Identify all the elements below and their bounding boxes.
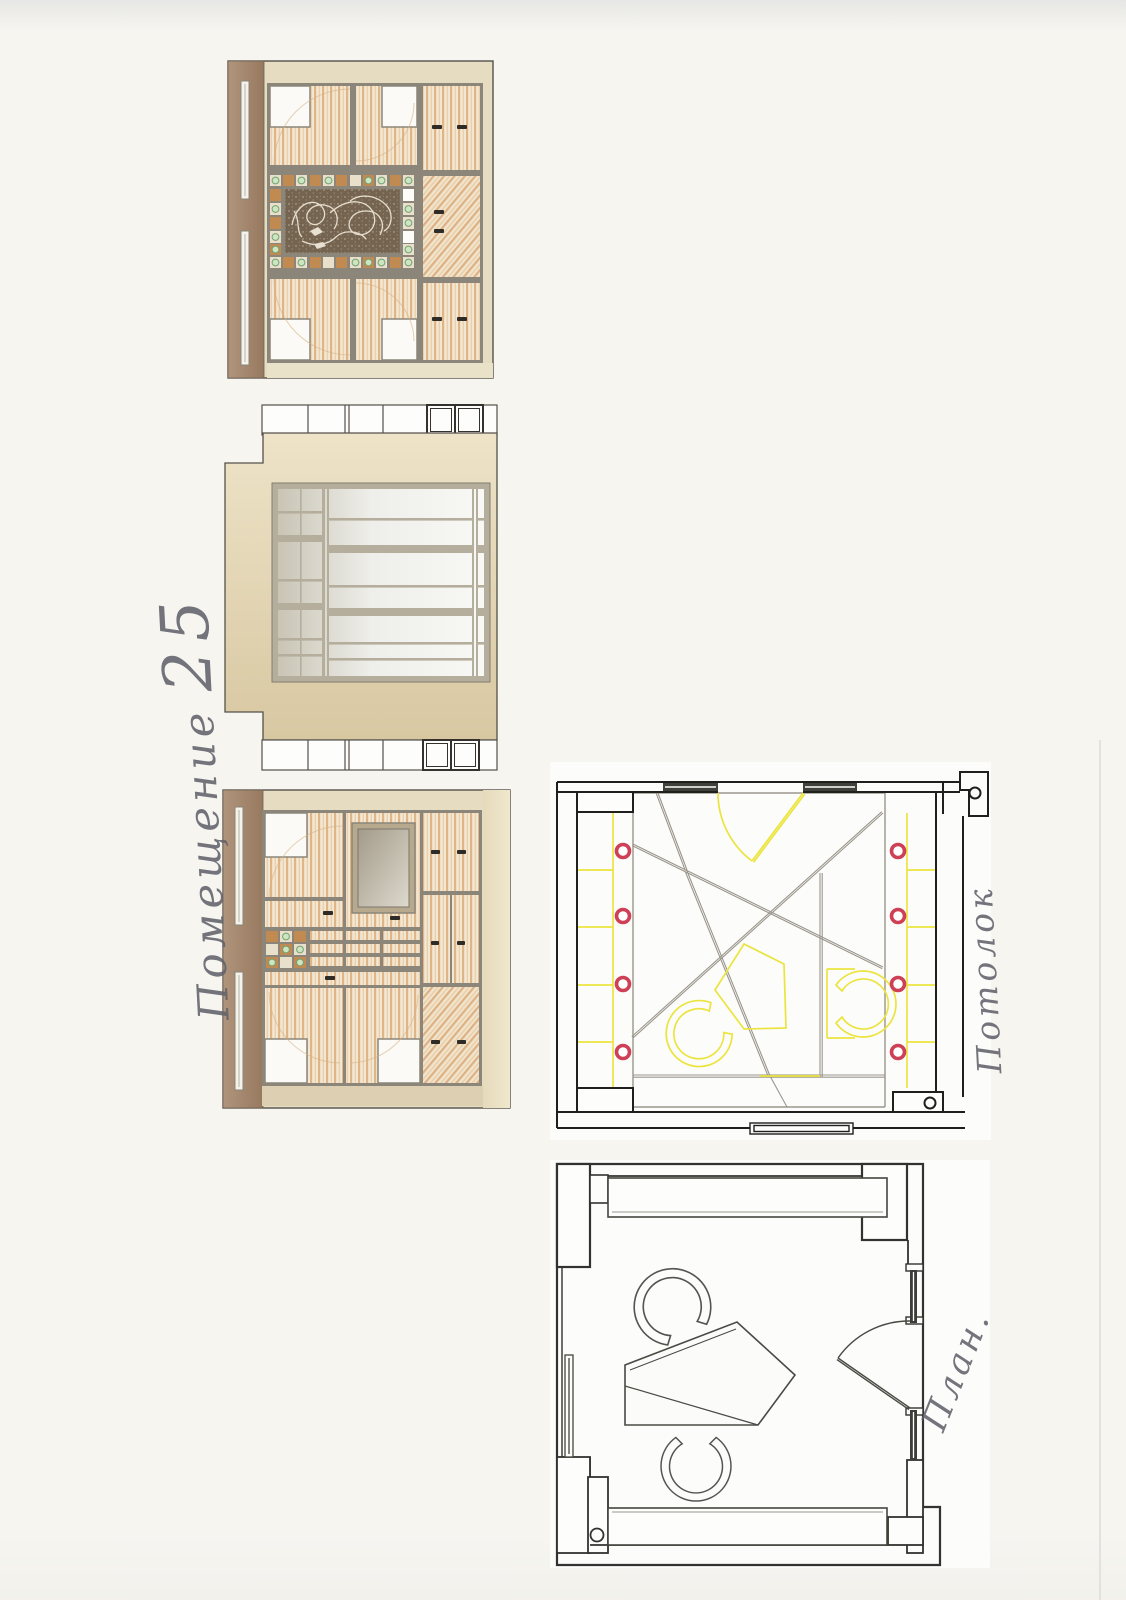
cabinet-handle xyxy=(323,911,333,915)
reference-circle xyxy=(925,1098,936,1109)
mirror xyxy=(352,823,415,913)
floor-plan xyxy=(550,1160,990,1568)
accent-dot-grid xyxy=(265,930,307,968)
cabinet-symbol xyxy=(750,1123,853,1134)
scanned-design-sheet: Помещение25 Потолок План. xyxy=(0,0,1126,1600)
cabinet-column xyxy=(423,86,480,360)
elevation-ornament-wall xyxy=(228,61,493,378)
reference-circle xyxy=(970,788,981,799)
plan-backdrop xyxy=(550,762,991,1140)
sheet-title-word: Помещение xyxy=(173,706,238,1021)
base-strip xyxy=(262,1086,483,1106)
white-inset-panel xyxy=(265,813,307,857)
page-edge-shadow xyxy=(1099,740,1101,1600)
elevation-mirror-wall xyxy=(223,790,510,1108)
cabinet-handle xyxy=(325,976,335,980)
drawer-strip xyxy=(265,972,420,985)
radiator xyxy=(565,1355,573,1457)
soffit-cells-bottom xyxy=(262,740,497,770)
white-inset-panel xyxy=(378,1039,420,1083)
white-inset-panel xyxy=(265,1039,307,1083)
sheet-title-number: 25 xyxy=(145,590,227,694)
glass-partition xyxy=(272,483,490,682)
soffit-cells-top xyxy=(262,405,497,435)
cabinet-handle xyxy=(390,916,400,920)
side-strip xyxy=(483,790,510,1108)
base-strip xyxy=(267,363,493,378)
elevation-window-wall xyxy=(225,405,497,770)
slat-band xyxy=(310,930,420,968)
white-inset-panel xyxy=(270,86,310,127)
column-circle xyxy=(591,1529,604,1542)
ornament-field xyxy=(284,188,401,254)
ornament-panel xyxy=(268,173,415,270)
ceiling-plan xyxy=(550,762,991,1140)
cabinet-column xyxy=(423,813,479,1083)
